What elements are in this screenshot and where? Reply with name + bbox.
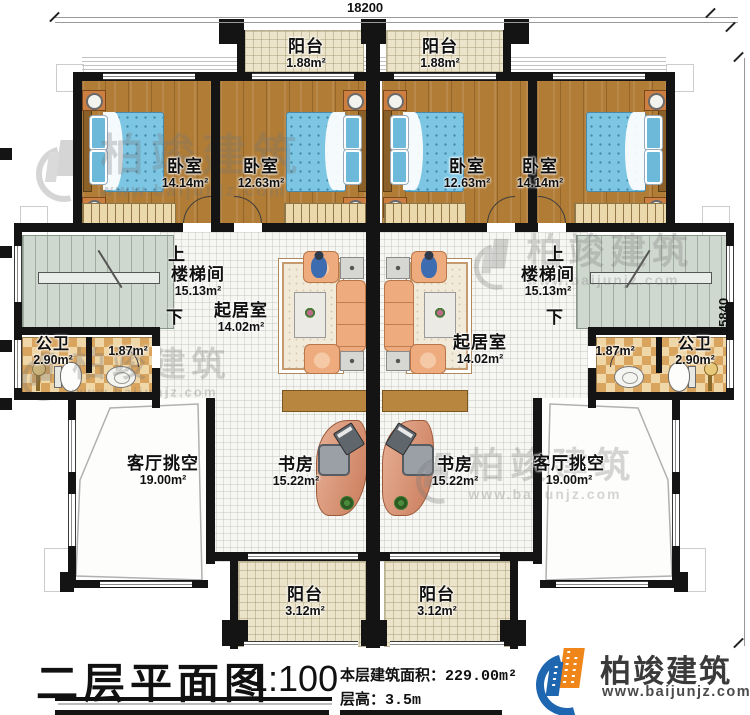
nightstand: [383, 90, 407, 111]
wardrobe: [284, 203, 366, 225]
room-label-bedroom-1: 卧室 14.14m²: [145, 158, 225, 191]
room-label-study-left: 书房 15.22m²: [254, 456, 338, 489]
door-opening: [183, 223, 211, 232]
void-right-outline: [542, 400, 678, 586]
stair-down-label: 下: [546, 303, 563, 328]
title-underline-shadow: [58, 703, 332, 705]
person-figure: [311, 256, 327, 278]
lamp-icon: [86, 93, 103, 110]
side-table: [340, 257, 364, 279]
wall: [674, 572, 688, 592]
bed-pillow: [344, 116, 361, 150]
wall-stub: [0, 340, 12, 352]
window: [68, 494, 76, 546]
bed-pillow: [391, 116, 408, 150]
bed-pillow: [391, 150, 408, 184]
plant-icon: [394, 496, 408, 510]
sink-icon: [106, 366, 136, 388]
bed-pillow: [90, 116, 107, 150]
floor-area-value: 229.00m²: [445, 668, 517, 685]
coffee-table: [424, 292, 456, 338]
shower-bar: [36, 375, 40, 391]
person-figure: [421, 256, 437, 278]
room-label-bath-left-inner: 1.87m²: [106, 344, 150, 358]
room-label-bedroom-2: 卧室 12.63m²: [221, 158, 301, 191]
door-opening: [152, 346, 160, 368]
window: [556, 581, 648, 587]
dimension-tick: [725, 22, 736, 33]
stair-handrail-right: [590, 272, 712, 284]
bed-blanket: [625, 112, 645, 190]
shower-bar: [708, 375, 712, 391]
title-underline: [55, 697, 332, 701]
window: [553, 73, 645, 80]
sink-icon: [614, 366, 644, 388]
bed-pillow: [645, 150, 662, 184]
balcony-railing: [390, 641, 504, 647]
wall: [588, 327, 734, 335]
side-table: [386, 257, 410, 279]
bed-blanket: [325, 112, 345, 190]
coffee-table: [294, 292, 326, 338]
bed-pillow: [645, 116, 662, 150]
brand-website: www.baijunjz.com: [602, 684, 750, 700]
wall: [60, 572, 74, 592]
room-label-bedroom-3: 卧室 12.63m²: [427, 158, 507, 191]
dimension-tick: [733, 52, 744, 63]
floor-plan-sheet: 18200 15840: [0, 0, 750, 715]
wardrobe: [82, 203, 176, 225]
nightstand: [343, 90, 367, 111]
window: [100, 581, 192, 587]
stair-up-label: 上: [547, 240, 564, 265]
right-dimension-label: 15840: [716, 280, 732, 352]
top-dimension-line: [55, 17, 738, 18]
wall: [211, 72, 220, 223]
nightstand: [644, 90, 668, 111]
room-label-bath-right-inner: 1.87m²: [593, 344, 637, 358]
bed-pillow: [90, 150, 107, 184]
door-opening: [487, 223, 515, 232]
stair-up-label: 上: [168, 240, 185, 265]
column: [361, 620, 387, 646]
wall-stub: [0, 246, 12, 258]
room-label-living-left: 起居室 14.02m²: [198, 302, 284, 335]
stair-handrail-left: [38, 272, 160, 284]
wall: [656, 337, 662, 373]
room-label-balcony-top-right: 阳台 1.88m²: [390, 38, 490, 71]
window: [672, 494, 680, 546]
window: [103, 73, 195, 80]
sheet-edge-bar: [340, 710, 502, 715]
balcony-door: [394, 73, 496, 80]
bookshelf: [382, 390, 468, 412]
top-dimension-label: 18200: [344, 0, 386, 15]
wall-stub: [0, 148, 12, 160]
floor-height-value: 3.5m: [385, 692, 421, 709]
void-left-outline: [70, 400, 206, 586]
plant-icon: [340, 496, 354, 510]
dimension-tick: [733, 638, 744, 649]
balcony-door: [252, 73, 354, 80]
wall: [14, 327, 160, 335]
room-label-void-left: 客厅挑空 19.00m²: [118, 455, 208, 488]
window: [672, 420, 680, 472]
window: [14, 246, 22, 302]
side-table: [340, 351, 364, 371]
bed-pillow: [344, 150, 361, 184]
bookshelf: [282, 390, 368, 412]
lamp-icon: [387, 93, 404, 110]
door-opening: [234, 223, 262, 232]
floor-area-label: 本层建筑面积：: [340, 668, 445, 685]
door-opening: [538, 223, 566, 232]
room-label-bedroom-4: 卧室 14.14m²: [500, 158, 580, 191]
window: [68, 420, 76, 472]
stair-down-label: 下: [166, 303, 183, 328]
floor-height-row: 层高：3.5m: [340, 688, 421, 709]
window: [14, 340, 22, 388]
room-label-void-right: 客厅挑空 19.00m²: [524, 455, 614, 488]
room-label-stairwell-right: 楼梯间 15.13m²: [506, 266, 590, 299]
room-label-balcony-bottom-left: 阳台 3.12m²: [260, 586, 350, 619]
right-dimension-line: [744, 58, 745, 646]
armchair: [304, 344, 340, 374]
floor-area-row: 本层建筑面积：229.00m²: [340, 664, 517, 685]
room-label-study-right: 书房 15.22m²: [413, 456, 497, 489]
wall: [14, 223, 73, 232]
sheet-title: 二层平面图: [36, 650, 271, 711]
wall: [86, 337, 92, 373]
brand-logo-icon: [536, 646, 598, 708]
sofa: [336, 280, 366, 352]
room-label-living-right: 起居室 14.02m²: [437, 334, 523, 367]
wall: [588, 392, 734, 400]
wall: [73, 72, 82, 232]
wall: [14, 392, 160, 400]
sheet-scale: 1:100: [248, 658, 338, 700]
wall: [528, 72, 537, 223]
floor-height-label: 层高：: [340, 692, 385, 709]
nightstand: [82, 90, 106, 111]
balcony-door: [248, 553, 358, 560]
wardrobe: [574, 203, 668, 225]
balcony-door: [390, 553, 500, 560]
wardrobe: [384, 203, 466, 225]
top-dimension-line2: [55, 22, 738, 23]
wall: [73, 223, 666, 232]
side-table: [386, 351, 410, 371]
balcony-railing: [244, 641, 358, 647]
lamp-icon: [347, 93, 364, 110]
sofa: [384, 280, 414, 352]
wall: [666, 72, 675, 232]
lamp-icon: [648, 93, 665, 110]
wall-stub: [0, 398, 12, 410]
room-label-stairwell-left: 楼梯间 15.13m²: [156, 266, 240, 299]
room-label-balcony-bottom-right: 阳台 3.12m²: [392, 586, 482, 619]
room-label-bath-left: 公卫 2.90m²: [23, 336, 83, 368]
room-label-balcony-top-left: 阳台 1.88m²: [256, 38, 356, 71]
